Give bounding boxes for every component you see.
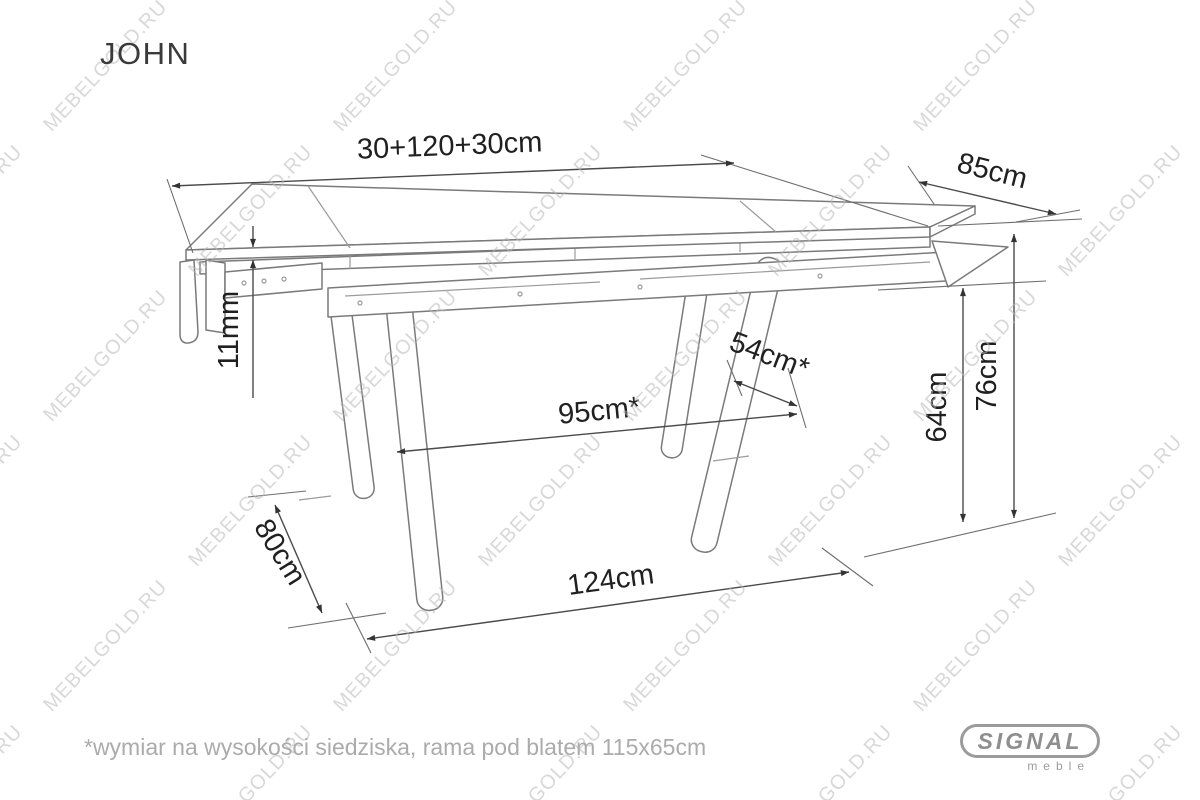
watermark-text: MEBELGOLD.RU [0, 721, 27, 800]
footnote-text: *wymiar na wysokości siedziska, rama pod… [84, 734, 706, 761]
watermark-text: MEBELGOLD.RU [909, 576, 1042, 716]
watermark-text: MEBELGOLD.RU [764, 721, 897, 800]
watermark-text: MEBELGOLD.RU [39, 576, 172, 716]
product-title: JOHN [100, 36, 190, 72]
dim-label-top-thickness: 11mm [213, 291, 245, 369]
dim-feet-depth: 80cm [247, 491, 386, 628]
logo-brand-text: SIGNAL [978, 728, 1083, 755]
watermark-text: MEBELGOLD.RU [329, 0, 462, 136]
watermark-text: MEBELGOLD.RU [329, 576, 462, 716]
signal-logo: SIGNAL meble [960, 724, 1100, 773]
watermark-text: MEBELGOLD.RU [0, 141, 27, 281]
watermark-text: MEBELGOLD.RU [39, 286, 172, 426]
watermark-text: MEBELGOLD.RU [474, 431, 607, 571]
watermark-text: MEBELGOLD.RU [764, 431, 897, 571]
spec-sheet: 30+120+30cm 85cm 11mm 95cm* [0, 0, 1200, 800]
dim-label-top-width: 30+120+30cm [356, 126, 543, 165]
dim-label-feet-depth: 80cm [247, 514, 312, 591]
watermark-text: MEBELGOLD.RU [1054, 431, 1187, 571]
technical-drawing: 30+120+30cm 85cm 11mm 95cm* [0, 0, 1200, 800]
logo-border: SIGNAL [960, 724, 1100, 758]
watermark-text: MEBELGOLD.RU [0, 431, 27, 571]
logo-sub-text: meble [960, 759, 1100, 773]
watermark-text: MEBELGOLD.RU [909, 0, 1042, 136]
floor-line [299, 496, 331, 500]
watermark-text: MEBELGOLD.RU [619, 576, 752, 716]
watermark-text: MEBELGOLD.RU [619, 0, 752, 136]
dim-label-feet-width: 124cm [565, 558, 656, 602]
dim-label-depth: 85cm [954, 147, 1031, 195]
